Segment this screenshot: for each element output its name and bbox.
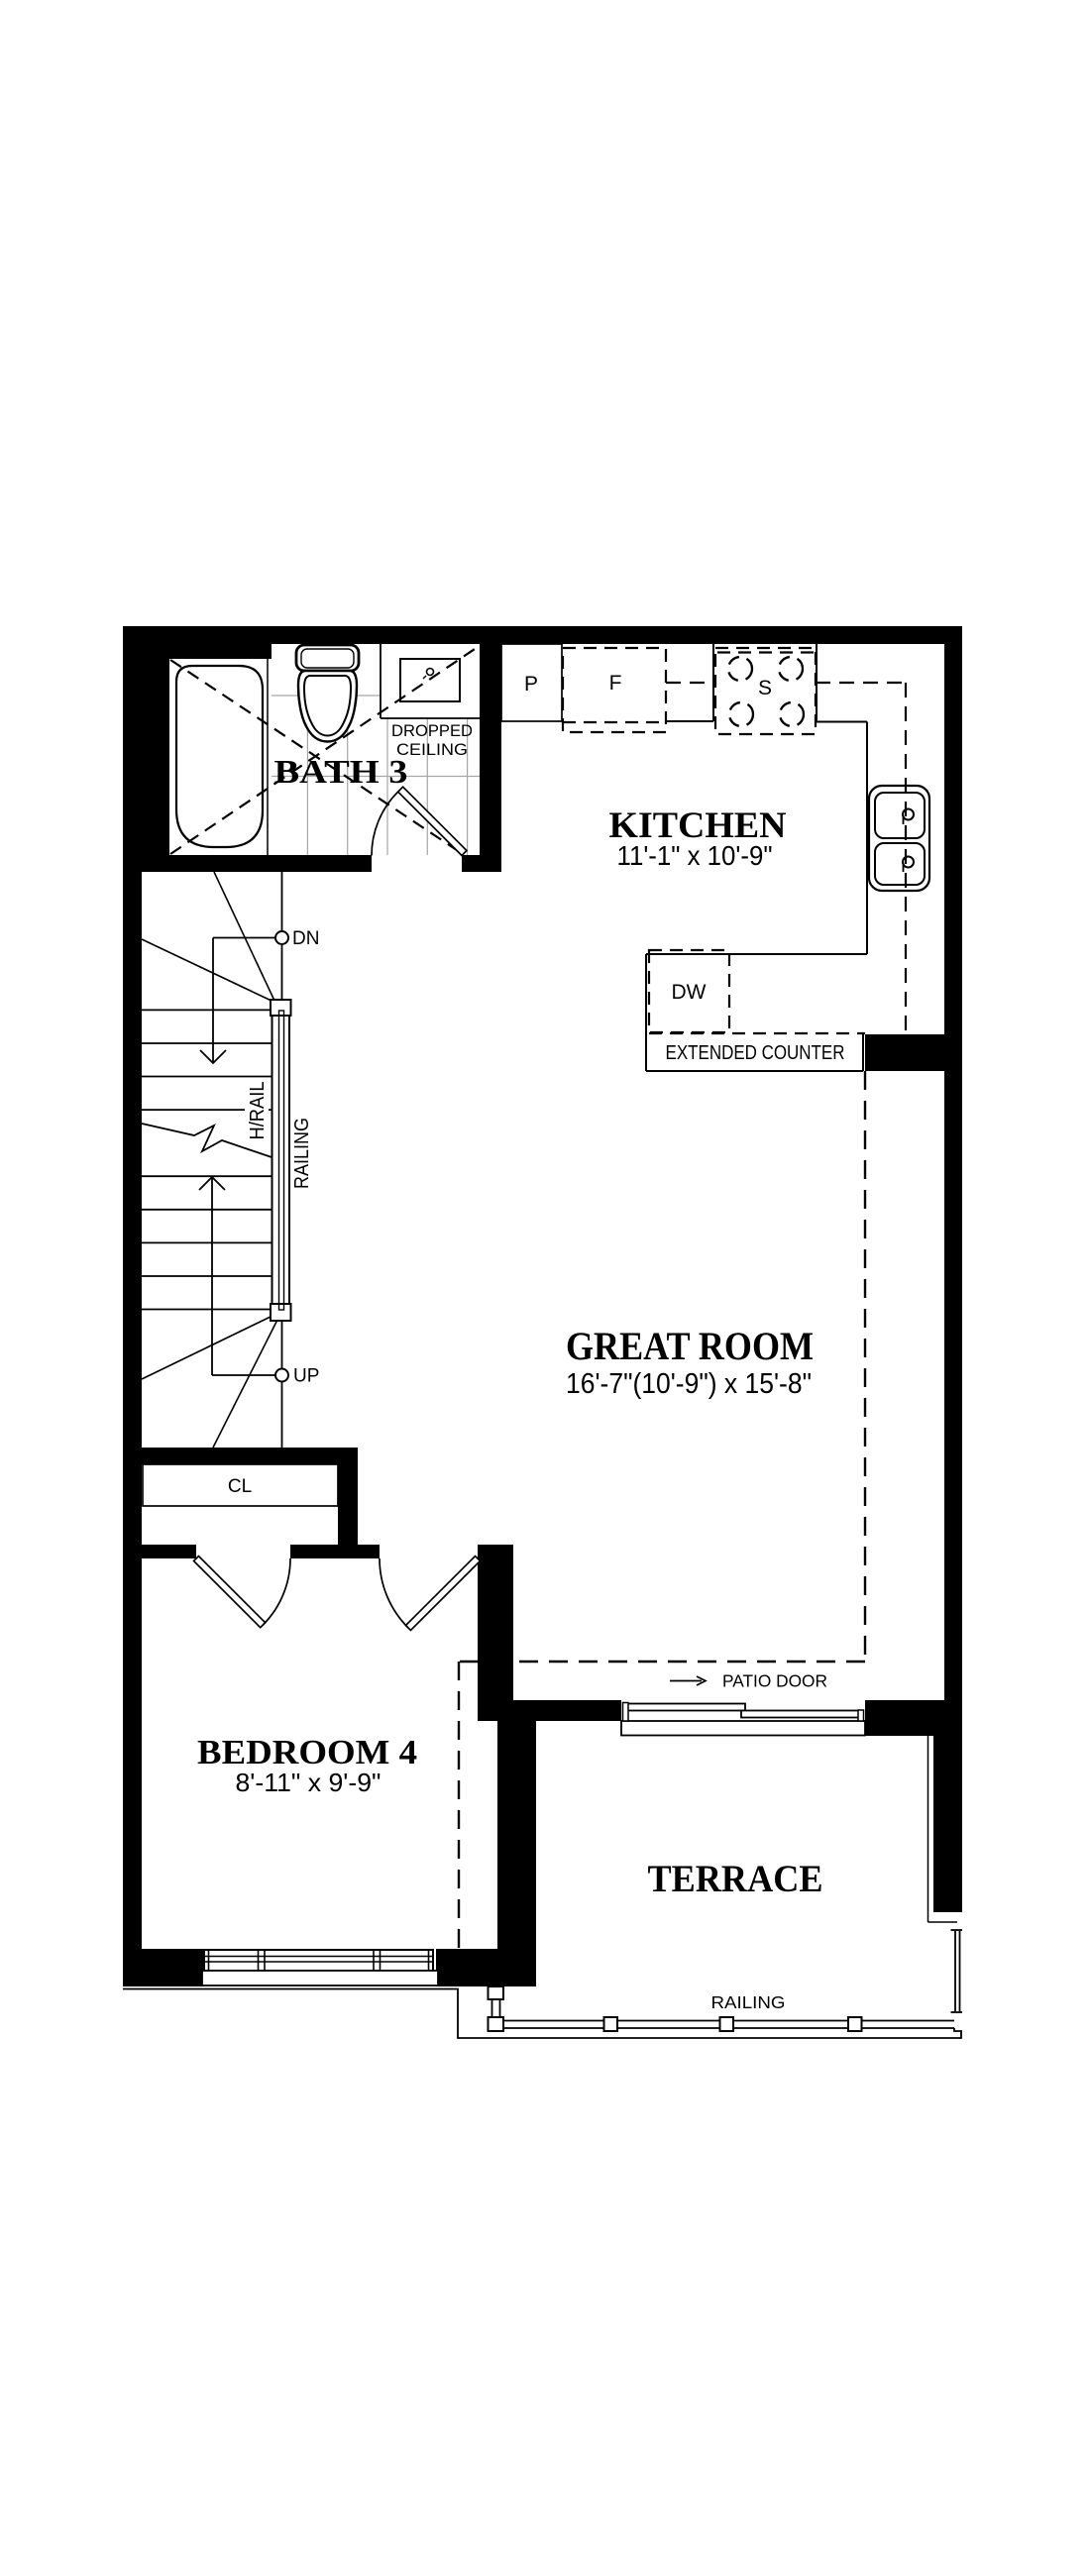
svg-text:DN: DN — [292, 928, 319, 949]
svg-text:CEILING: CEILING — [396, 741, 468, 759]
svg-text:PATIO DOOR: PATIO DOOR — [722, 1671, 827, 1691]
svg-text:UP: UP — [293, 1366, 319, 1387]
svg-text:DROPPED: DROPPED — [391, 722, 473, 740]
svg-text:DW: DW — [672, 981, 707, 1004]
svg-text:11'-1" x 10'-9": 11'-1" x 10'-9" — [617, 840, 773, 871]
svg-text:8'-11" x 9'-9": 8'-11" x 9'-9" — [236, 1768, 381, 1797]
svg-text:TERRACE: TERRACE — [648, 1858, 823, 1900]
svg-text:RAILING: RAILING — [291, 1118, 313, 1189]
svg-text:16'-7"(10'-9") x 15'-8": 16'-7"(10'-9") x 15'-8" — [566, 1368, 812, 1400]
svg-text:H/RAIL: H/RAIL — [247, 1082, 269, 1140]
svg-text:BATH 3: BATH 3 — [274, 754, 408, 791]
svg-text:GREAT ROOM: GREAT ROOM — [566, 1324, 814, 1368]
svg-text:F: F — [609, 672, 622, 695]
svg-text:BEDROOM 4: BEDROOM 4 — [197, 1733, 417, 1771]
svg-text:S: S — [758, 677, 772, 699]
svg-text:RAILING: RAILING — [711, 1992, 786, 2012]
svg-text:P: P — [524, 673, 538, 696]
svg-text:CL: CL — [228, 1476, 252, 1497]
svg-text:EXTENDED COUNTER: EXTENDED COUNTER — [666, 1042, 845, 1064]
